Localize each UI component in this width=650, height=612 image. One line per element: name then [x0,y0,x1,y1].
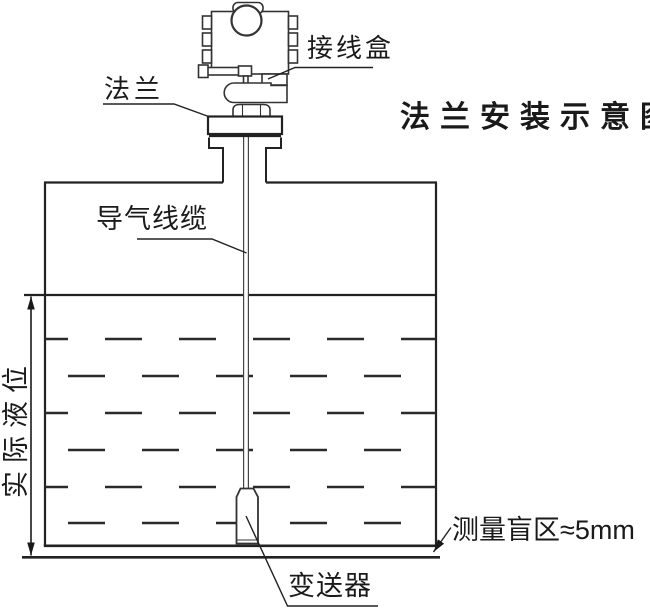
flange-leader [103,104,210,117]
label-transmitter: 变送器 [288,572,372,602]
diagram-title: 法兰安装示意图 [400,101,650,134]
label-flange: 法兰 [104,75,164,104]
vent-fitting [199,65,240,78]
label-junction-box: 接线盒 [307,34,394,63]
nozzle-right [266,138,281,183]
nozzle-left [209,138,223,183]
manifold-block [224,83,287,103]
label-measurement-blind-zone: 测量盲区≈5mm [452,516,635,546]
center-stem [239,66,252,84]
tank-outline [22,183,440,558]
air-guide-cable [244,136,249,490]
label-actual-liquid-level: 实际液位 [1,353,31,503]
top-cap-circle [232,6,262,36]
flange-plate [208,117,282,135]
label-air-guide-cable: 导气线缆 [96,205,208,235]
transmitter-head [199,3,298,118]
air-cable-leader [137,239,247,253]
hex-nut [233,105,270,118]
flange-installation-diagram: 法兰安装示意图 接线盒 法兰 导气线缆 实际液位 测量盲区≈5mm 变送器 [0,0,650,612]
